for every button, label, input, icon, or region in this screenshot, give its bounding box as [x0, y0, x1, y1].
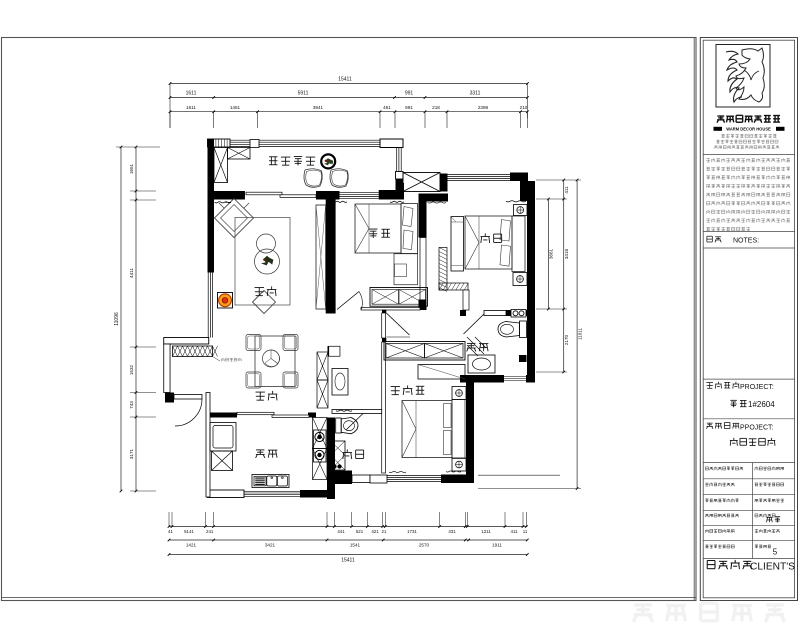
svg-text:1611: 1611: [186, 91, 197, 97]
svg-text:1421: 1421: [186, 543, 197, 548]
svg-text:2570: 2570: [419, 543, 430, 548]
svg-text:4411: 4411: [129, 268, 134, 278]
svg-text:461: 461: [383, 105, 391, 110]
svg-text:5141: 5141: [184, 529, 194, 534]
svg-text:WARM DECOR HOUSE: WARM DECOR HOUSE: [726, 127, 771, 132]
svg-text:15411: 15411: [338, 77, 352, 83]
svg-text:41: 41: [168, 529, 173, 534]
svg-text:2398: 2398: [478, 105, 489, 110]
svg-text:5: 5: [773, 548, 778, 557]
svg-text:1#2604: 1#2604: [748, 400, 775, 409]
svg-text:210: 210: [520, 105, 528, 110]
svg-text:3421: 3421: [265, 543, 276, 548]
svg-text:15411: 15411: [341, 557, 355, 563]
svg-text:CLIENT'S: CLIENT'S: [750, 562, 795, 573]
svg-text:421: 421: [371, 529, 379, 534]
svg-text:411: 411: [511, 529, 519, 534]
svg-text:3171: 3171: [129, 448, 134, 459]
svg-text:1911: 1911: [492, 543, 502, 548]
svg-text:1451: 1451: [230, 105, 241, 110]
svg-text:991: 991: [405, 105, 413, 110]
svg-text:11011: 11011: [577, 328, 582, 341]
svg-text:2170: 2170: [564, 334, 569, 345]
svg-text:1611: 1611: [186, 105, 196, 110]
svg-text:521: 521: [356, 529, 364, 534]
svg-text:1541: 1541: [350, 543, 361, 548]
svg-text:991: 991: [405, 91, 414, 97]
svg-text:3941: 3941: [313, 105, 324, 110]
svg-text:441: 441: [337, 529, 345, 534]
svg-text:218: 218: [432, 105, 440, 110]
svg-text:1532: 1532: [129, 364, 134, 375]
svg-text:21: 21: [382, 529, 387, 534]
svg-text:PROJECT:: PROJECT:: [740, 384, 774, 391]
svg-text:11096: 11096: [114, 312, 120, 326]
svg-text:431: 431: [448, 529, 456, 534]
svg-text:PPOJECT:: PPOJECT:: [740, 425, 774, 432]
svg-text:1211: 1211: [481, 529, 491, 534]
svg-text:1651: 1651: [129, 163, 134, 174]
svg-text:11: 11: [523, 529, 528, 534]
svg-text:3418: 3418: [564, 248, 569, 259]
svg-text:NOTES:: NOTES:: [733, 238, 759, 245]
svg-text:3311: 3311: [470, 91, 481, 97]
svg-text:5911: 5911: [298, 91, 309, 97]
svg-text:411: 411: [564, 186, 569, 194]
svg-text:1731: 1731: [407, 529, 417, 534]
svg-text:743: 743: [129, 401, 134, 409]
svg-text:3661: 3661: [548, 248, 553, 259]
svg-text:241: 241: [206, 529, 214, 534]
